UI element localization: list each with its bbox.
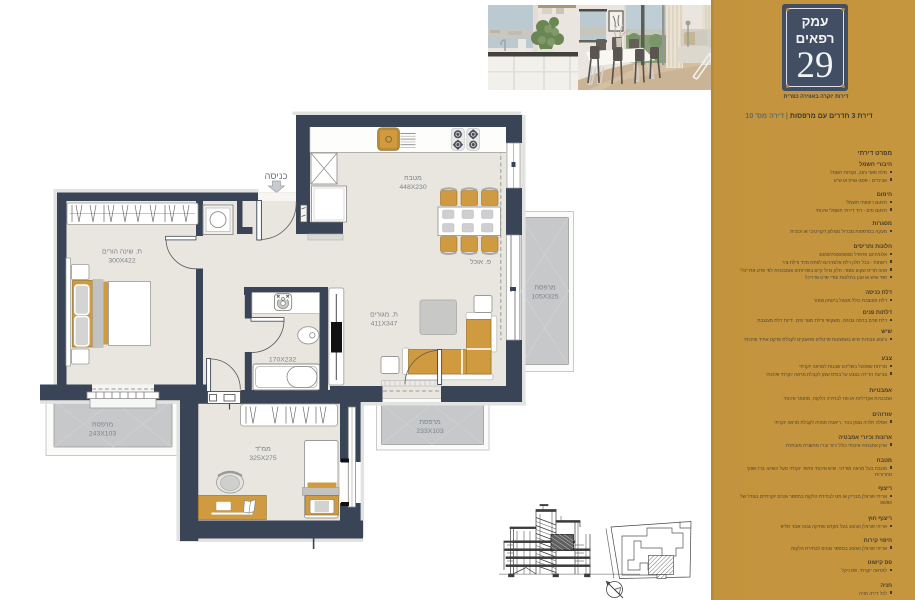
svg-text:מרפסת: מרפסת [419,419,441,426]
svg-text:170X232: 170X232 [269,357,296,364]
svg-text:233X103: 233X103 [416,428,443,435]
svg-text:448X230: 448X230 [399,184,426,191]
svg-text:כניסה: כניסה [264,171,287,182]
svg-text:ממ"ד: ממ"ד [255,446,271,453]
svg-text:ת. שינה הורים: ת. שינה הורים [102,249,142,256]
svg-text:ת. מגורים: ת. מגורים [370,312,398,319]
svg-text:243X103: 243X103 [89,431,116,438]
svg-text:105X325: 105X325 [531,294,558,301]
svg-text:300X422: 300X422 [108,258,135,265]
svg-text:מרפסת: מרפסת [92,422,114,429]
svg-text:325X275: 325X275 [249,455,276,462]
svg-text:מטבח: מטבח [404,175,422,182]
svg-text:411X347: 411X347 [371,321,398,328]
svg-text:פ. אוכל: פ. אוכל [470,258,491,266]
svg-text:מרפסת: מרפסת [534,285,556,292]
